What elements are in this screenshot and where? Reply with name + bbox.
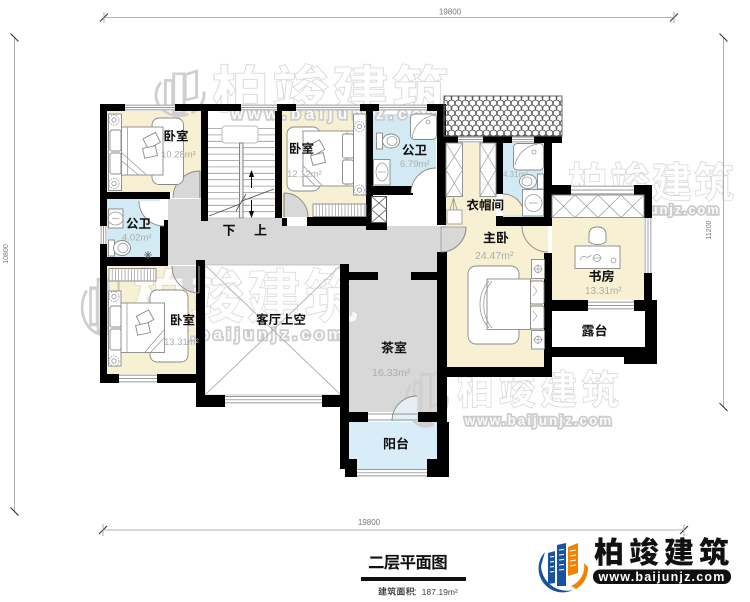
- svg-text:13.31m²: 13.31m²: [164, 337, 199, 348]
- svg-text:：187.19m²: ：187.19m²: [413, 587, 458, 597]
- svg-text:24.47m²: 24.47m²: [475, 250, 514, 262]
- svg-text:www.baijunjz.com: www.baijunjz.com: [597, 570, 725, 584]
- svg-text:10.28m²: 10.28m²: [161, 150, 196, 161]
- svg-text:www.baijunjz.com: www.baijunjz.com: [464, 413, 614, 428]
- svg-text:6.79m²: 6.79m²: [400, 159, 430, 170]
- svg-text:10800: 10800: [3, 244, 10, 264]
- svg-text:13.31m²: 13.31m²: [585, 286, 622, 297]
- svg-text:4.31m²: 4.31m²: [503, 170, 528, 179]
- svg-text:16.33m²: 16.33m²: [372, 367, 411, 379]
- svg-text:11200: 11200: [706, 220, 713, 239]
- svg-text:19800: 19800: [439, 8, 462, 17]
- svg-text:4.02m²: 4.02m²: [122, 233, 152, 244]
- svg-text:12.12m²: 12.12m²: [287, 169, 322, 180]
- svg-text:19800: 19800: [358, 518, 381, 527]
